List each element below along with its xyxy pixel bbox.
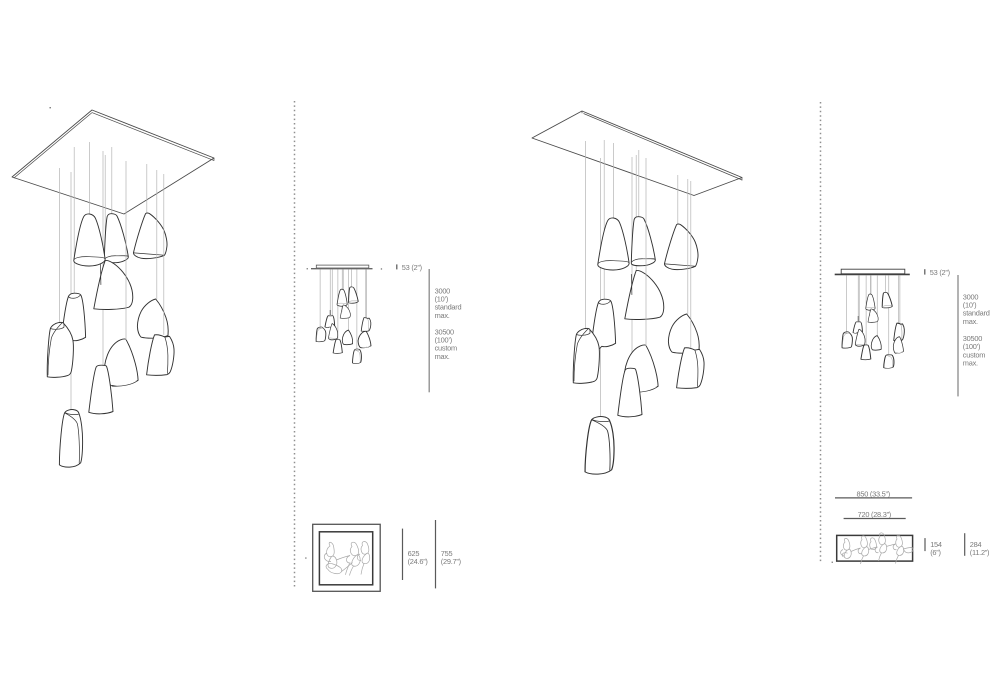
svg-text:(24.6”): (24.6”) <box>408 557 428 566</box>
svg-text:max.: max. <box>435 311 450 320</box>
svg-text:(29.7”): (29.7”) <box>441 557 461 566</box>
svg-text:max.: max. <box>963 317 978 326</box>
svg-text:(6”): (6”) <box>930 548 941 557</box>
svg-text:53 (2”): 53 (2”) <box>930 268 950 277</box>
svg-text:(11.2”): (11.2”) <box>970 548 989 557</box>
svg-text:max.: max. <box>435 352 450 361</box>
svg-text:max.: max. <box>963 359 978 368</box>
svg-text:720 (28.3”): 720 (28.3”) <box>858 510 891 519</box>
svg-text:850 (33.5”): 850 (33.5”) <box>857 490 890 499</box>
svg-text:53 (2”): 53 (2”) <box>402 263 422 272</box>
